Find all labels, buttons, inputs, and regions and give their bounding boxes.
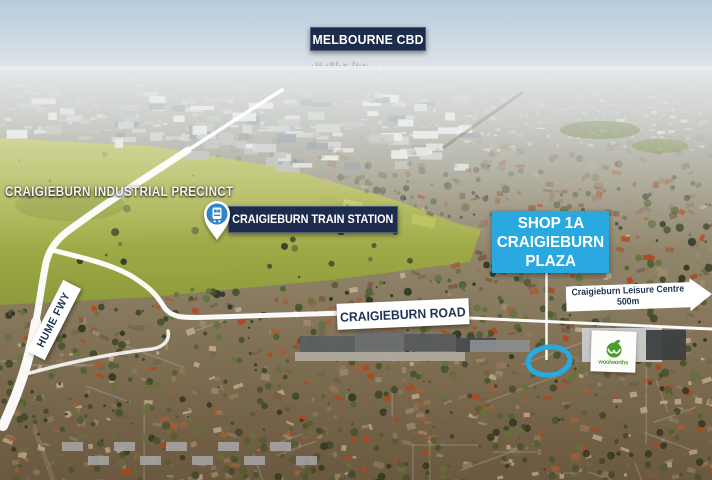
aerial-map: MELBOURNE CBD CRAIGIEBURN INDUSTRIAL PRE… [0, 0, 712, 480]
train-station-pin [199, 196, 235, 244]
melbourne-cbd-label: MELBOURNE CBD [310, 27, 426, 51]
shop-line2: CRAIGIEBURN [497, 233, 604, 252]
woolworths-sign: woolworths [590, 330, 636, 373]
shop-plaza-label: SHOP 1A CRAIGIEBURN PLAZA [492, 211, 609, 273]
craigieburn-road-line [52, 250, 345, 318]
melbourne-cbd-text: MELBOURNE CBD [312, 32, 423, 47]
woolworths-apple-logo-icon [602, 337, 625, 360]
leisure-centre-arrow: Craigieburn Leisure Centre 500m [565, 277, 712, 315]
train-station-text: CRAIGIEBURN TRAIN STATION [232, 214, 393, 226]
train-station-label: CRAIGIEBURN TRAIN STATION [228, 206, 398, 233]
location-highlight-circle [527, 345, 572, 377]
hume-fwy-line [185, 90, 282, 152]
craigieburn-road-text: CRAIGIEBURN ROAD [340, 304, 466, 324]
woolworths-wordmark: woolworths [598, 359, 628, 366]
leisure-centre-text: Craigieburn Leisure Centre 500m [570, 278, 685, 315]
shop-line3: PLAZA [525, 252, 576, 271]
shop-line1: SHOP 1A [517, 214, 583, 233]
